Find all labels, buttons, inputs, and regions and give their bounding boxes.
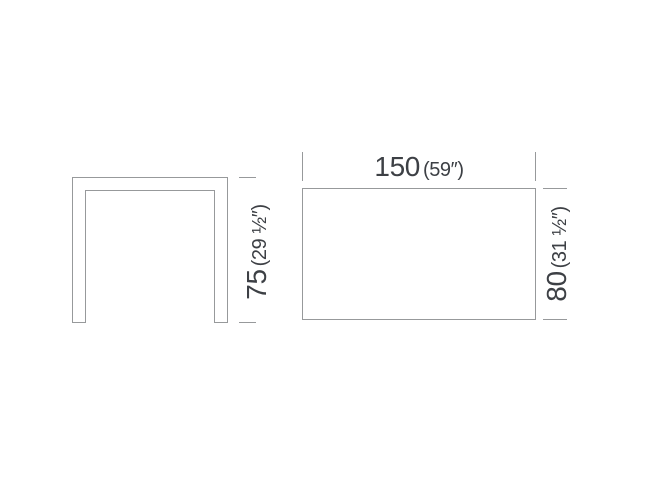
depth-imperial: (31 ½″) (549, 206, 571, 268)
table-dimension-diagram: 150(59″) 75(29 ½″) 80(31 ½″) (0, 0, 650, 479)
depth-value: 80 (541, 271, 572, 301)
width-imperial: (59″) (423, 159, 464, 181)
width-value: 150 (374, 151, 420, 182)
table-top-view (303, 189, 536, 320)
depth-dimension-label: 80(31 ½″) (543, 206, 571, 301)
height-dimension-label: 75(29 ½″) (243, 204, 271, 299)
height-imperial: (29 ½″) (249, 204, 271, 266)
table-front-view (73, 178, 228, 323)
height-value: 75 (241, 269, 272, 299)
width-dimension-label: 150(59″) (302, 150, 536, 184)
